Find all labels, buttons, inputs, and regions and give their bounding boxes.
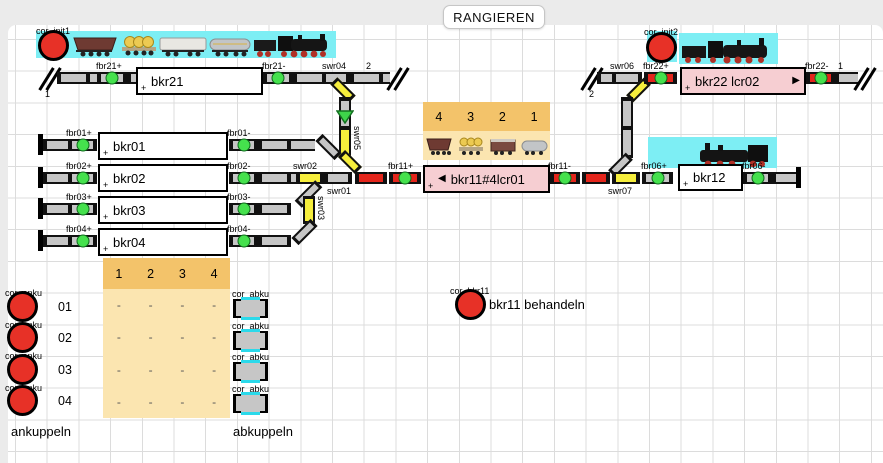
switch-label: swr03 (316, 196, 326, 220)
track-straight (258, 172, 296, 184)
sensor-fbr04p[interactable] (68, 235, 97, 247)
cor-bkr11-button[interactable] (455, 289, 486, 320)
sensor-label: fbr21+ (96, 61, 122, 71)
track-number-02: 02 (50, 331, 80, 345)
block-plus: + (103, 149, 108, 158)
sensor-fbr22p[interactable] (644, 72, 677, 84)
sensor-green-dot (76, 139, 89, 152)
track-number-04: 04 (50, 394, 80, 408)
sensor-green-dot (76, 235, 89, 248)
direction-arrow-icon: ◀ (438, 174, 446, 184)
sensor-fbr03p[interactable] (68, 203, 97, 215)
decoupler-3[interactable] (233, 362, 268, 381)
sensor-green-dot (237, 203, 250, 216)
track-vertical (621, 97, 633, 158)
sensor-green-dot (237, 139, 250, 152)
track-straight (350, 72, 390, 84)
switch-label: swr05 (352, 126, 362, 150)
block-bkr03[interactable]: bkr03 + (98, 196, 228, 224)
wagon-table-body (423, 131, 550, 160)
track-straight (258, 203, 291, 215)
sensor-label: fbr11+ (388, 161, 413, 171)
coupling-table-body: ---- ---- ---- ---- (103, 289, 230, 418)
cell: - (117, 395, 121, 409)
block-bkr02[interactable]: bkr02 + (98, 164, 228, 192)
sensor-label: fbr02- (227, 161, 251, 171)
block-label: bkr03 (113, 203, 146, 218)
block-label: bkr02 (113, 171, 146, 186)
freight-train-image (36, 31, 336, 58)
sensor-fbr03m[interactable] (229, 203, 258, 215)
connector-label: 2 (589, 89, 594, 99)
sensor-fbr21p[interactable] (97, 72, 127, 84)
cor-anku-button-2[interactable] (7, 322, 38, 353)
cell: - (180, 363, 184, 377)
track-straight (597, 72, 612, 84)
sensor-green-dot (814, 72, 827, 85)
connector-track-right21[interactable] (390, 66, 407, 92)
cell: - (180, 298, 184, 312)
track-straight (835, 72, 858, 84)
cor-anku-button-4[interactable] (7, 385, 38, 416)
sensor-green-dot (399, 172, 412, 185)
col-2: 2 (147, 267, 154, 281)
coupling-table-header: 1 2 3 4 (103, 258, 230, 289)
rangieren-panel: RANGIEREN (0, 0, 883, 463)
cell: - (212, 363, 216, 377)
col-3: 3 (179, 267, 186, 281)
cell: - (212, 395, 216, 409)
cell: - (149, 298, 153, 312)
col-4: 4 (211, 267, 218, 281)
cell: - (149, 330, 153, 344)
sensor-green-dot (106, 72, 119, 85)
track-straight (43, 235, 68, 247)
sensor-label: fbr02+ (66, 161, 92, 171)
sensor-fbr01p[interactable] (68, 139, 97, 151)
block-plus: + (103, 245, 108, 254)
cell: - (117, 298, 121, 312)
cell: - (117, 330, 121, 344)
rangieren-tab-label: RANGIEREN (453, 10, 535, 25)
sensor-green-dot (559, 172, 572, 185)
cor-init2-button[interactable] (646, 32, 677, 63)
rangieren-tab[interactable]: RANGIEREN (443, 5, 545, 29)
block-label: bkr01 (113, 139, 146, 154)
wagon-table-header: 4 3 2 1 (423, 102, 550, 131)
block-label: bkr11#4lcr01 (451, 172, 525, 187)
track-route-red (355, 172, 387, 184)
track-straight (57, 72, 98, 84)
track-number-03: 03 (50, 363, 80, 377)
sensor-label: fbr21- (262, 61, 286, 71)
wagon-col-4: 4 (435, 110, 442, 124)
sensor-label: fbr06- (742, 161, 766, 171)
cell: - (212, 330, 216, 344)
block-bkr12[interactable]: bkr12 + (678, 164, 743, 191)
track-straight (43, 139, 68, 151)
block-bkr01[interactable]: bkr01 + (98, 132, 228, 160)
block-plus: + (685, 84, 690, 93)
sensor-fbr06m[interactable] (743, 172, 772, 184)
switch-label: swr07 (608, 186, 632, 196)
cell: - (149, 363, 153, 377)
wagon-col-3: 3 (467, 110, 474, 124)
sensor-fbr01m[interactable] (229, 139, 258, 151)
train-image-area-1 (36, 31, 336, 58)
block-plus: + (683, 180, 688, 189)
sensor-green-dot (237, 235, 250, 248)
cell: - (117, 363, 121, 377)
sensor-label: fbr04- (227, 224, 251, 234)
direction-arrow-icon: ▶ (792, 76, 800, 86)
wagon-col-2: 2 (499, 110, 506, 124)
decoupler-2[interactable] (233, 331, 268, 350)
block-plus: + (141, 84, 146, 93)
sensor-label: fbr03+ (66, 192, 92, 202)
sensor-fbr11p[interactable] (389, 172, 421, 184)
block-label: bkr12 (693, 170, 726, 185)
track-straight (258, 139, 315, 151)
switch-swr07[interactable] (612, 172, 640, 184)
switch-label: swr02 (293, 161, 317, 171)
cell: - (212, 298, 216, 312)
block-label: bkr04 (113, 235, 146, 250)
block-bkr11[interactable]: ◀ bkr11#4lcr01 + (423, 165, 550, 193)
track-straight (772, 172, 796, 184)
sensor-fbr06p[interactable] (642, 172, 673, 184)
sensor-green-dot (76, 203, 89, 216)
cor-init1-button[interactable] (38, 30, 69, 61)
wagon-row-images (423, 131, 550, 160)
switch-swr02[interactable] (296, 172, 324, 184)
block-plus: + (103, 181, 108, 190)
route-direction-arrow (336, 110, 354, 124)
block-label: bkr22 lcr02 (695, 74, 759, 89)
sensor-fbr11m[interactable] (550, 172, 580, 184)
sensor-green-dot (751, 172, 764, 185)
track-number-01: 01 (50, 300, 80, 314)
sensor-fbr02p[interactable] (68, 172, 97, 184)
cor-anku-button-3[interactable] (7, 354, 38, 385)
col-1: 1 (115, 267, 122, 281)
sensor-label: fbr06+ (641, 161, 667, 171)
cell: - (180, 330, 184, 344)
sensor-green-dot (76, 172, 89, 185)
switch-label: swr04 (322, 61, 346, 71)
train-image-area-2 (679, 33, 778, 64)
connector-label: 2 (366, 61, 371, 71)
block-plus: + (103, 213, 108, 222)
track-straight (293, 72, 322, 84)
sensor-green-dot (654, 72, 667, 85)
block-plus: + (428, 182, 433, 191)
steam-loco-image (679, 33, 778, 64)
cor-anku-button-1[interactable] (7, 291, 38, 322)
sensor-fbr22m[interactable] (806, 72, 835, 84)
wagon-col-1: 1 (531, 110, 538, 124)
connector-label: 1 (838, 61, 843, 71)
sensor-green-dot (651, 172, 664, 185)
cell: - (149, 395, 153, 409)
block-bkr22[interactable]: bkr22 lcr02 ▶ + (680, 67, 806, 95)
track-straight (127, 72, 136, 84)
connector-label: 1 (45, 89, 50, 99)
sensor-fbr02m[interactable] (229, 172, 258, 184)
block-bkr04[interactable]: bkr04 + (98, 228, 228, 256)
sensor-label: fbr22- (805, 61, 829, 71)
track-route-red (582, 172, 610, 184)
sensor-fbr21m[interactable] (263, 72, 293, 84)
switch-label: swr01 (327, 186, 351, 196)
ankuppeln-caption: ankuppeln (11, 424, 71, 439)
bkr11-behandeln-caption: bkr11 behandeln (489, 297, 585, 312)
block-label: bkr21 (151, 74, 184, 89)
sensor-label: fbr11- (548, 161, 571, 171)
sensor-fbr04m[interactable] (229, 235, 258, 247)
decoupler-1[interactable] (233, 299, 268, 318)
decoupler-4[interactable] (233, 394, 268, 413)
sensor-green-dot (272, 72, 285, 85)
switch-label: swr06 (610, 61, 634, 71)
block-bkr21[interactable]: bkr21 + (136, 67, 263, 95)
sensor-label: fbr01- (227, 128, 251, 138)
cell: - (180, 395, 184, 409)
sensor-label: fbr01+ (66, 128, 92, 138)
track-straight (43, 172, 68, 184)
abkuppeln-caption: abkuppeln (233, 424, 293, 439)
track-straight (43, 203, 68, 215)
sensor-label: fbr04+ (66, 224, 92, 234)
track-straight (258, 235, 291, 247)
sensor-green-dot (237, 172, 250, 185)
buffer-stop (796, 167, 801, 188)
sensor-label: fbr03- (227, 192, 251, 202)
connector-track-right22[interactable] (857, 66, 874, 92)
switch-swr01[interactable] (324, 172, 352, 184)
